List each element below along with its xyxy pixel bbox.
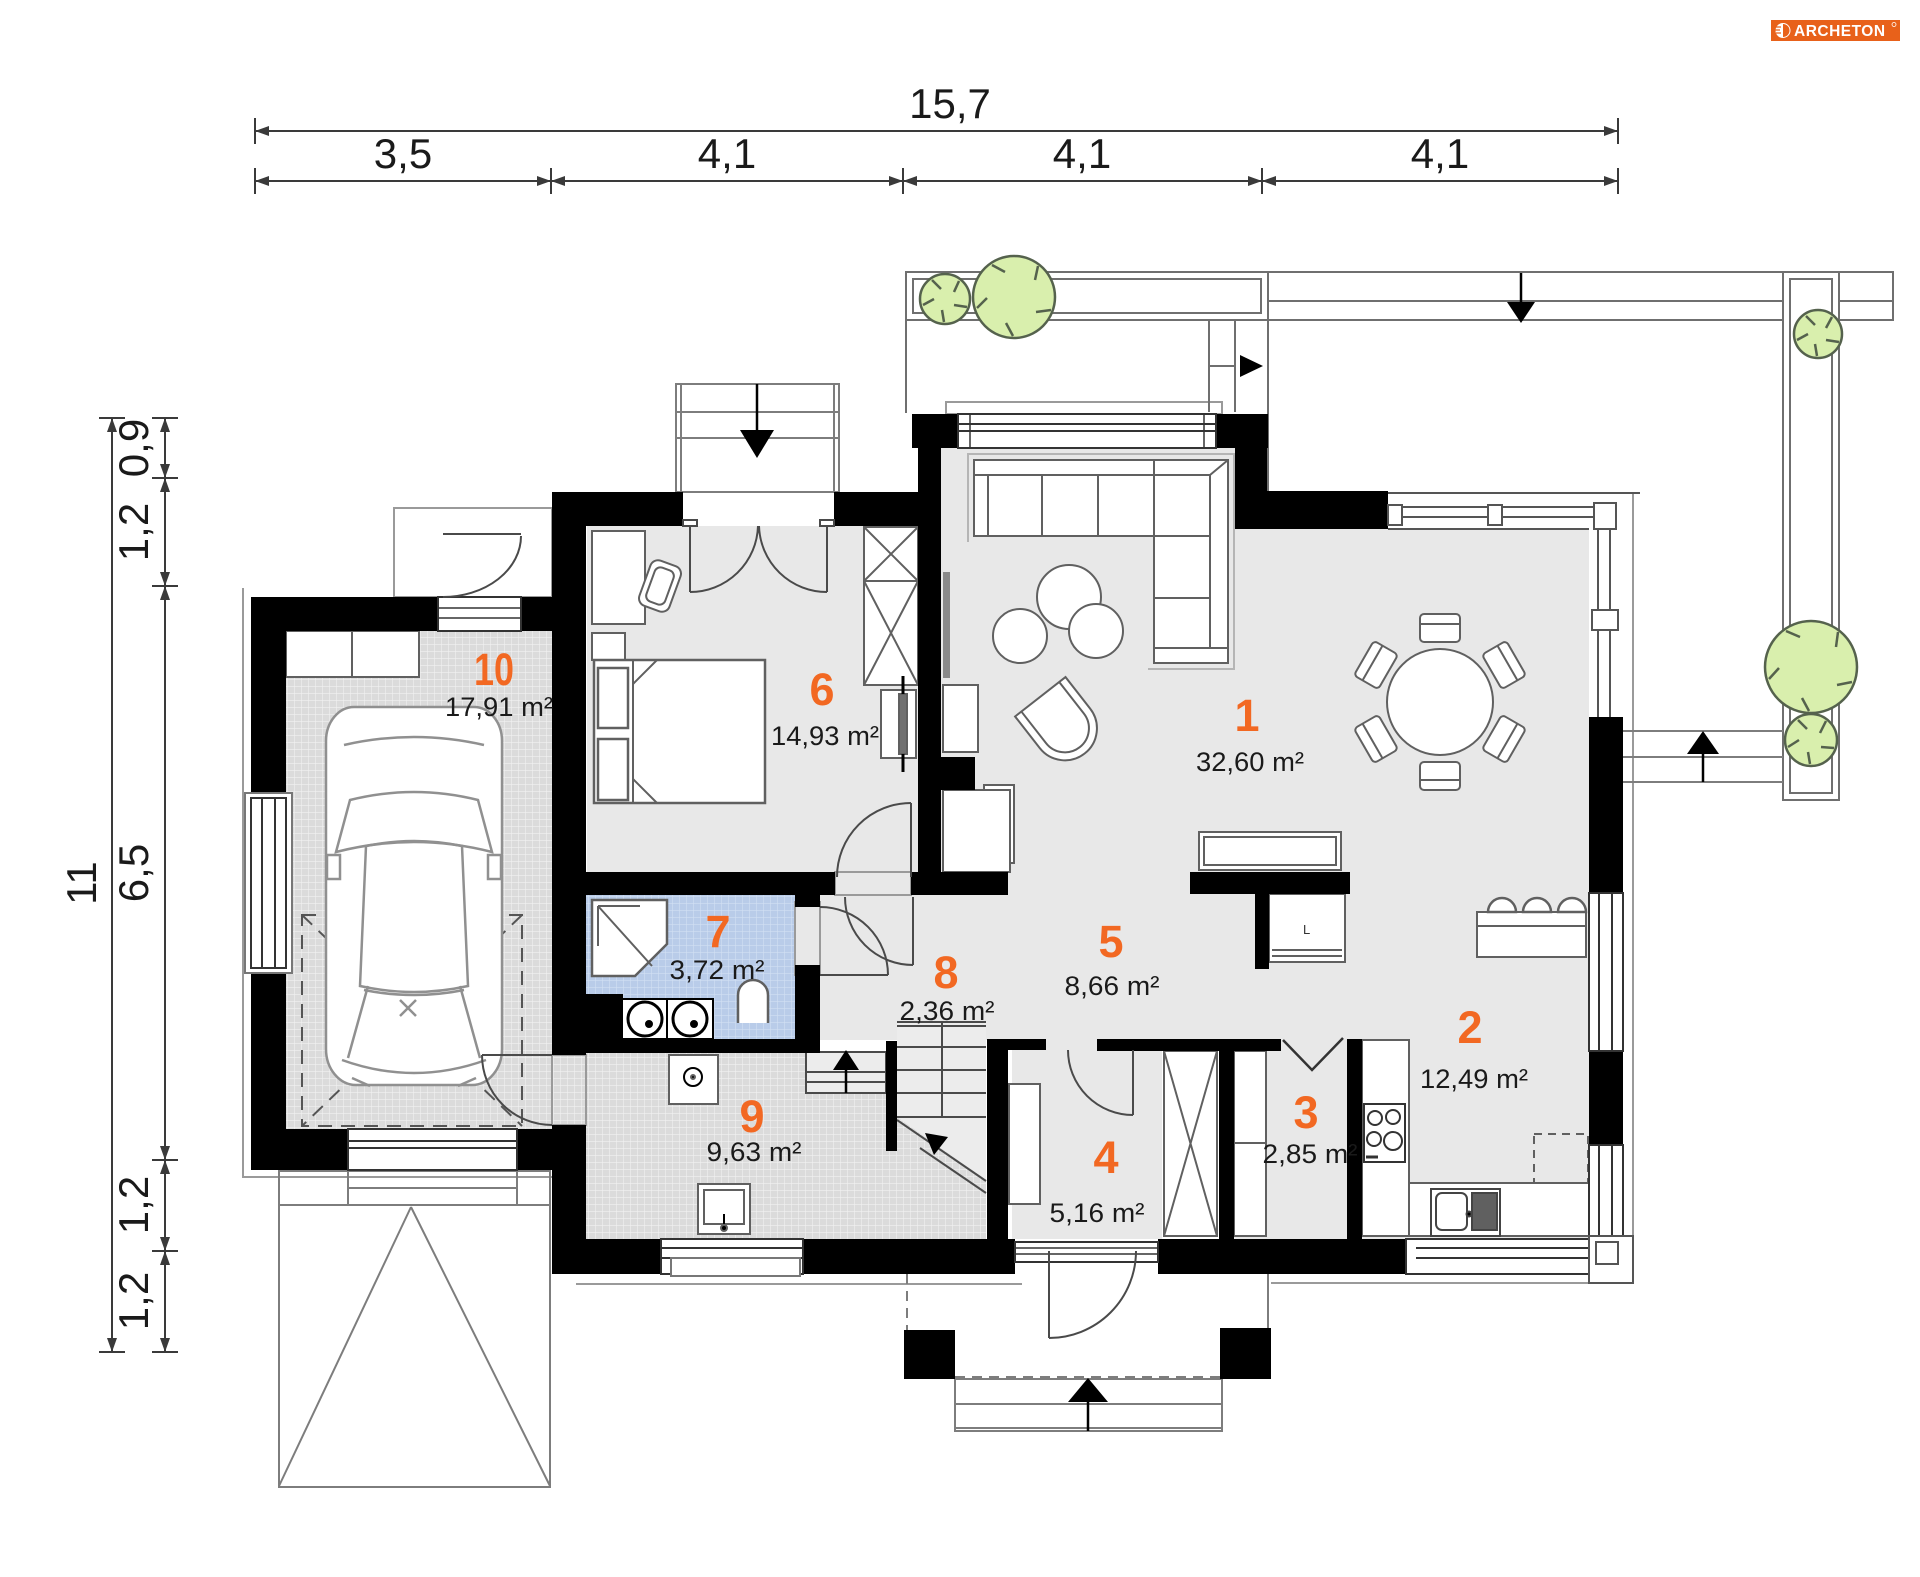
- svg-text:9: 9: [739, 1091, 764, 1142]
- svg-text:9,63 m²: 9,63 m²: [707, 1137, 802, 1167]
- svg-text:3: 3: [1293, 1087, 1318, 1138]
- svg-text:4,1: 4,1: [1053, 130, 1111, 177]
- svg-text:4,1: 4,1: [698, 130, 756, 177]
- svg-text:12,49 m²: 12,49 m²: [1420, 1064, 1528, 1094]
- svg-text:5: 5: [1098, 916, 1123, 967]
- svg-text:11: 11: [58, 861, 105, 905]
- svg-text:7: 7: [705, 906, 730, 957]
- svg-text:8: 8: [933, 947, 958, 998]
- svg-text:4: 4: [1093, 1132, 1118, 1183]
- svg-text:10: 10: [474, 644, 514, 695]
- svg-text:1,2: 1,2: [110, 1272, 157, 1330]
- svg-text:5,16 m²: 5,16 m²: [1050, 1198, 1145, 1228]
- svg-text:2: 2: [1457, 1002, 1482, 1053]
- svg-text:0,9: 0,9: [110, 419, 157, 477]
- svg-text:L: L: [1303, 922, 1310, 937]
- svg-text:1: 1: [1234, 690, 1259, 741]
- svg-text:32,60 m²: 32,60 m²: [1196, 747, 1304, 777]
- svg-text:8,66 m²: 8,66 m²: [1065, 971, 1160, 1001]
- svg-text:ARCHETON: ARCHETON: [1794, 23, 1886, 40]
- svg-text:15,7: 15,7: [909, 80, 991, 127]
- svg-text:6,5: 6,5: [110, 844, 157, 902]
- svg-text:1,2: 1,2: [110, 1176, 157, 1234]
- svg-text:4,1: 4,1: [1411, 130, 1469, 177]
- svg-text:1,2: 1,2: [110, 503, 157, 561]
- svg-text:2,36 m²: 2,36 m²: [900, 996, 995, 1026]
- svg-text:2,85 m²: 2,85 m²: [1263, 1139, 1358, 1169]
- svg-text:17,91 m²: 17,91 m²: [445, 692, 553, 722]
- svg-text:3,5: 3,5: [374, 130, 432, 177]
- svg-text:14,93 m²: 14,93 m²: [771, 721, 879, 751]
- svg-text:6: 6: [809, 664, 834, 715]
- svg-text:3,72 m²: 3,72 m²: [670, 955, 765, 985]
